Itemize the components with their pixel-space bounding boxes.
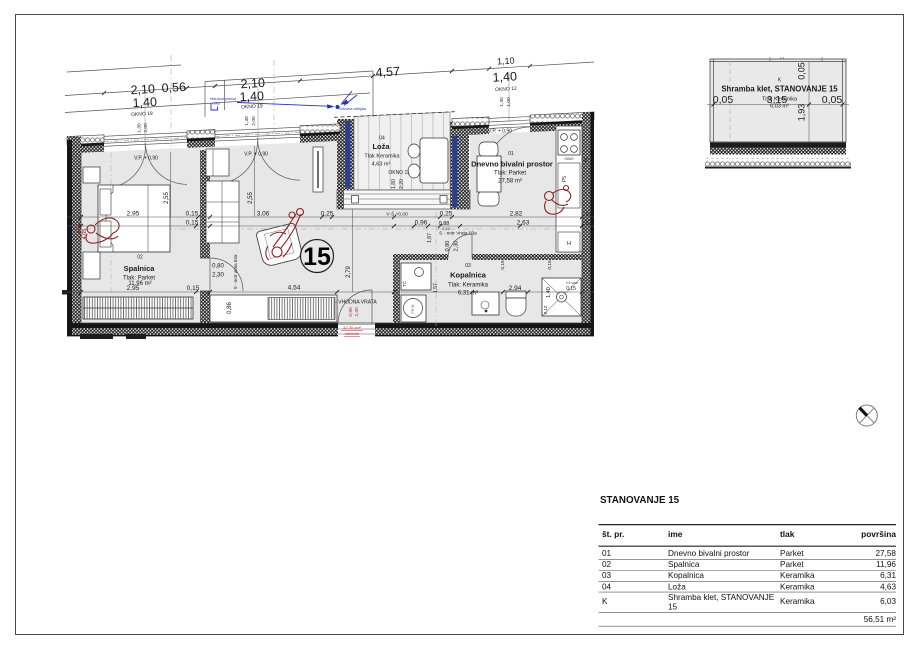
svg-text:Kopalnica: Kopalnica	[450, 271, 487, 280]
svg-text:6,31: 6,31	[880, 571, 896, 580]
svg-text:4,57: 4,57	[375, 64, 400, 79]
svg-text:1,30: 1,30	[137, 123, 143, 133]
svg-text:0,25: 0,25	[321, 211, 334, 218]
svg-text:15: 15	[303, 243, 331, 271]
svg-text:2,79: 2,79	[346, 266, 352, 278]
svg-text:0,80: 0,80	[212, 264, 224, 270]
svg-text:2,00: 2,00	[143, 123, 149, 133]
svg-text:S - notr vrata 03a: S - notr vrata 03a	[233, 254, 238, 289]
svg-text:Tlak: Parket: Tlak: Parket	[494, 171, 526, 177]
svg-text:04: 04	[379, 136, 385, 142]
svg-text:Shramba klet, STANOVANJE: Shramba klet, STANOVANJE	[668, 593, 775, 602]
svg-text:0,12: 0,12	[543, 305, 548, 314]
svg-text:Spalnica: Spalnica	[668, 560, 700, 569]
svg-text:02: 02	[602, 560, 612, 569]
svg-text:1,40: 1,40	[132, 95, 157, 110]
svg-text:P5: P5	[562, 176, 568, 182]
svg-text:03: 03	[602, 571, 612, 580]
svg-text:OKNO 11: OKNO 11	[388, 170, 410, 176]
svg-text:0,15: 0,15	[500, 260, 506, 270]
svg-text:ime: ime	[668, 529, 683, 539]
svg-text:0,05: 0,05	[713, 94, 734, 106]
svg-text:0,6 sono: 0,6 sono	[566, 281, 578, 285]
svg-text:Shramba klet, STANOVANJE 15: Shramba klet, STANOVANJE 15	[721, 85, 838, 94]
svg-text:H: H	[584, 158, 590, 162]
svg-text:0,05: 0,05	[797, 62, 807, 80]
svg-text:1,40: 1,40	[239, 89, 264, 104]
svg-text:Keramika: Keramika	[780, 583, 815, 592]
svg-text:0,15: 0,15	[186, 211, 199, 218]
svg-text:1,40: 1,40	[492, 69, 517, 84]
svg-text:K: K	[602, 597, 608, 606]
svg-text:Tičkovna odbijala: Tičkovna odbijala	[338, 107, 366, 111]
svg-text:2,82: 2,82	[510, 211, 523, 218]
svg-text:smernik: smernik	[345, 331, 359, 336]
svg-text:2,30: 2,30	[454, 241, 460, 252]
svg-text:01: 01	[602, 549, 612, 558]
svg-text:Loža: Loža	[372, 142, 390, 151]
svg-text:2,55: 2,55	[248, 192, 254, 204]
svg-text:1,57: 1,57	[433, 283, 439, 293]
svg-text:Loža: Loža	[668, 583, 686, 592]
svg-text:TČ: TČ	[401, 280, 407, 287]
svg-text:0,56: 0,56	[161, 80, 186, 95]
svg-text:11,96: 11,96	[876, 560, 896, 569]
svg-text:2,30: 2,30	[354, 307, 360, 317]
svg-text:3,06: 3,06	[257, 211, 270, 218]
svg-text:4,54: 4,54	[288, 285, 301, 292]
svg-text:površina: površina	[861, 529, 896, 539]
svg-text:03: 03	[465, 263, 471, 269]
svg-text:Kopalnica: Kopalnica	[668, 571, 704, 580]
svg-text:2,00: 2,00	[251, 116, 257, 126]
svg-text:11,96 m²: 11,96 m²	[128, 281, 151, 287]
svg-text:tlak: tlak	[780, 529, 795, 539]
svg-text:vtika: vtika	[212, 102, 219, 106]
svg-text:V.P. + 0,90: V.P. + 0,90	[488, 129, 512, 135]
svg-text:1,80: 1,80	[391, 179, 397, 189]
svg-text:1,87: 1,87	[427, 233, 433, 243]
svg-text:STANOVANJE 15: STANOVANJE 15	[600, 495, 680, 506]
svg-text:2,63: 2,63	[517, 220, 530, 227]
svg-text:2,20: 2,20	[399, 179, 405, 189]
svg-text:Tlak Keramika: Tlak Keramika	[364, 154, 400, 160]
svg-text:0,15: 0,15	[566, 286, 576, 292]
svg-text:H: H	[567, 241, 571, 247]
svg-text:1,10: 1,10	[497, 55, 515, 66]
svg-text:Spalnica: Spalnica	[124, 264, 156, 273]
svg-text:Keramika: Keramika	[780, 571, 815, 580]
svg-text:2,95: 2,95	[127, 211, 140, 218]
svg-text:04: 04	[602, 583, 612, 592]
svg-text:4,63: 4,63	[880, 583, 896, 592]
svg-text:št. pr.: št. pr.	[602, 529, 624, 539]
svg-text:56,51 m²: 56,51 m²	[864, 615, 897, 624]
svg-text:02: 02	[137, 255, 143, 261]
svg-text:6,31 m²: 6,31 m²	[458, 291, 478, 297]
svg-text:0,15: 0,15	[547, 260, 553, 270]
svg-text:0,15: 0,15	[186, 220, 199, 227]
svg-text:Parket: Parket	[780, 549, 804, 558]
svg-text:4,63 m²: 4,63 m²	[372, 162, 391, 168]
svg-text:1,93: 1,93	[797, 104, 807, 122]
svg-text:2,55: 2,55	[164, 192, 170, 204]
svg-text:27,58: 27,58	[876, 549, 897, 558]
svg-text:V.P. + 0,90: V.P. + 0,90	[134, 156, 158, 162]
svg-text:01: 01	[508, 151, 514, 157]
svg-text:Tlak: Keramika: Tlak: Keramika	[448, 283, 489, 289]
svg-text:42,30 cm²: 42,30 cm²	[343, 325, 361, 330]
svg-text:0,86: 0,86	[227, 302, 233, 314]
svg-text:6,03: 6,03	[880, 597, 896, 606]
svg-text:1,30: 1,30	[244, 116, 250, 126]
svg-text:2,30: 2,30	[212, 273, 224, 279]
svg-text:Dnevno bivalni prostor: Dnevno bivalni prostor	[668, 549, 750, 558]
svg-text:V.P. + 0,90: V.P. + 0,90	[244, 152, 268, 158]
svg-text:0000: 0000	[565, 156, 575, 161]
svg-text:27,58 m²: 27,58 m²	[498, 179, 522, 185]
svg-text:PR 45: PR 45	[411, 304, 415, 313]
svg-text:Parket: Parket	[780, 560, 804, 569]
svg-text:3,15: 3,15	[767, 94, 788, 106]
svg-text:1,00: 1,00	[506, 97, 512, 107]
svg-text:- VHODNA VRATA: - VHODNA VRATA	[335, 300, 377, 306]
svg-text:0,15: 0,15	[187, 285, 200, 292]
svg-text:Hidroizol prehod: Hidroizol prehod	[210, 97, 236, 101]
svg-text:0,2: 0,2	[586, 221, 593, 227]
svg-text:S - notr Vrata 03a: S - notr Vrata 03a	[439, 231, 477, 237]
svg-text:2,22: 2,22	[442, 226, 451, 231]
svg-text:0,05: 0,05	[822, 94, 843, 106]
svg-text:0,96: 0,96	[415, 220, 428, 227]
svg-text:0,90: 0,90	[348, 307, 354, 317]
svg-text:0,2: 0,2	[586, 212, 593, 218]
svg-text:Dnevno bivalni prostor: Dnevno bivalni prostor	[471, 160, 553, 169]
svg-text:V·Š +0,00: V·Š +0,00	[386, 211, 408, 218]
svg-text:0,25: 0,25	[440, 211, 453, 218]
svg-text:0,80: 0,80	[445, 241, 451, 252]
svg-text:1,30: 1,30	[499, 97, 505, 107]
svg-text:15: 15	[668, 603, 678, 612]
svg-text:Keramika: Keramika	[780, 597, 815, 606]
svg-text:1,40: 1,40	[546, 287, 552, 298]
svg-text:2,94: 2,94	[509, 285, 522, 292]
